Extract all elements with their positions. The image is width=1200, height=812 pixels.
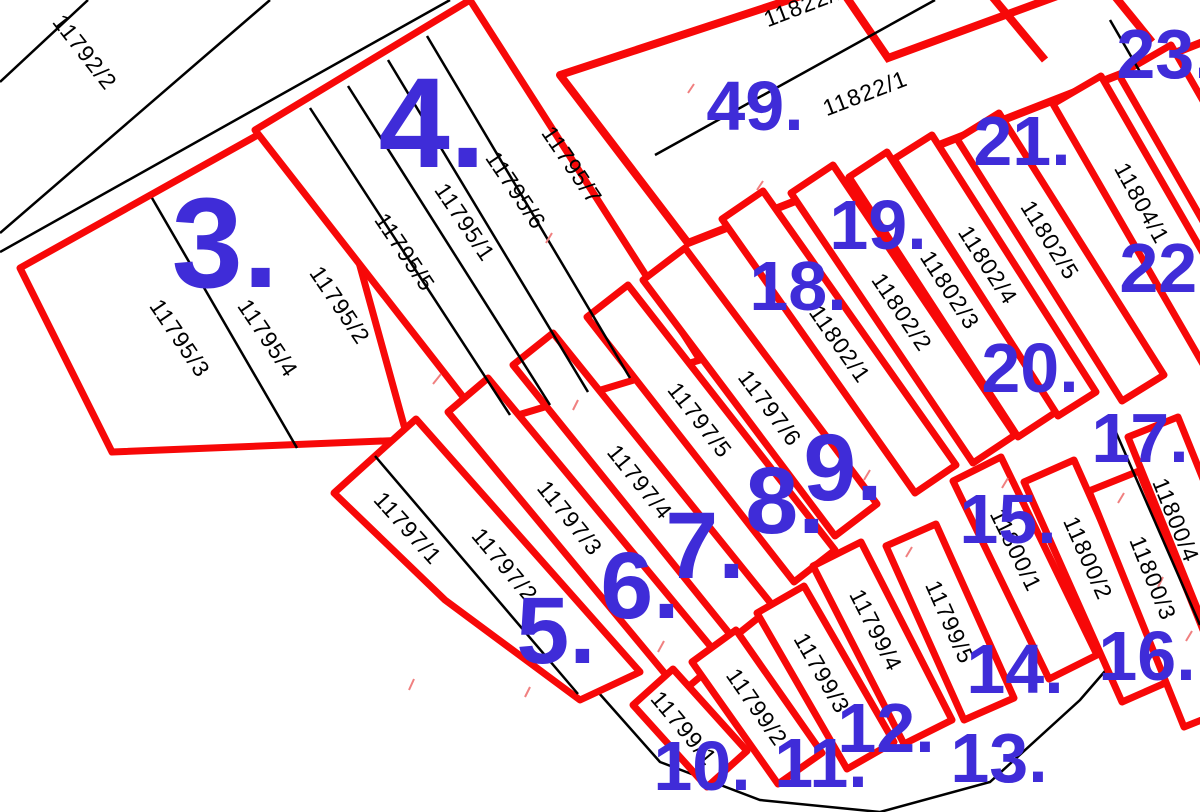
area-label-3: 3.: [172, 172, 279, 315]
area-label-17: 17.: [1091, 399, 1188, 477]
artifact-tick-1: [433, 374, 441, 384]
area-label-14: 14.: [966, 630, 1063, 708]
area-label-4: 4.: [379, 52, 486, 195]
area-label-19: 19.: [829, 186, 926, 264]
cadastral-map: 11792/211795/311795/411795/211795/511795…: [0, 0, 1200, 812]
area-label-21: 21.: [973, 102, 1070, 180]
area-label-22: 22.: [1119, 229, 1200, 307]
area-label-20: 20.: [981, 329, 1078, 407]
area-label-16: 16.: [1098, 617, 1195, 695]
area-label-9: 9.: [803, 415, 882, 521]
parcel-number-11792-2: 11792/2: [48, 9, 123, 95]
area-label-7: 7.: [665, 493, 744, 599]
area-label-10: 10.: [653, 727, 750, 805]
area-label-5: 5.: [516, 578, 595, 684]
map-canvas: 11792/211795/311795/411795/211795/511795…: [0, 0, 1200, 812]
area-label-13: 13.: [950, 719, 1047, 797]
area-label-15: 15.: [959, 480, 1056, 558]
area-label-49: 49.: [706, 67, 803, 145]
area-label-23: 23.: [1116, 15, 1200, 93]
artifact-tick-13: [525, 687, 530, 697]
artifact-tick-7: [409, 679, 414, 690]
area-label-12: 12.: [837, 689, 934, 767]
